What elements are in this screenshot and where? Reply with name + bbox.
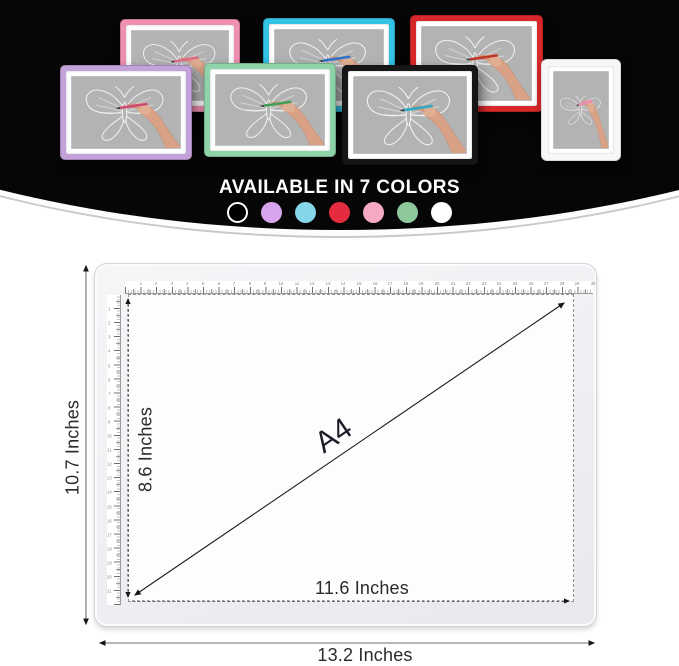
pad-screen <box>553 71 609 149</box>
hand-with-pen <box>113 91 181 149</box>
inner-width-label: 11.6 Inches <box>307 578 417 599</box>
hand-with-pen <box>575 87 609 149</box>
color-swatch-pink <box>363 202 384 223</box>
color-swatch-black <box>227 202 248 223</box>
outer-height-label: 10.7 Inches <box>63 398 84 498</box>
light-pad-white <box>542 60 620 160</box>
color-swatch-red <box>329 202 350 223</box>
light-pad-green <box>204 63 336 157</box>
hero-section: AVAILABLE IN 7 COLORS <box>0 0 679 250</box>
color-swatch-cyan <box>295 202 316 223</box>
pad-screen <box>353 76 467 154</box>
pad-mat <box>66 71 186 154</box>
ruler-top: 1234567891011121314151617181920212223242… <box>125 281 593 294</box>
color-swatches <box>0 202 679 223</box>
color-swatch-lilac <box>261 202 282 223</box>
light-pad-black <box>342 65 478 165</box>
color-swatch-green <box>397 202 418 223</box>
ruler-left: 123456789101112131415161718192021 <box>107 295 121 605</box>
pad-mat <box>548 66 614 154</box>
light-pad-purple <box>60 65 192 160</box>
hand-with-pen <box>257 89 325 146</box>
color-swatch-white <box>431 202 452 223</box>
pad-screen <box>215 74 325 146</box>
outer-width-label: 13.2 Inches <box>310 645 420 666</box>
illuminated-drawing-area <box>128 294 574 602</box>
pad-screen <box>71 76 181 149</box>
inner-height-label: 8.6 Inches <box>136 405 157 495</box>
pad-mat <box>210 69 330 151</box>
hand-with-pen <box>397 92 467 154</box>
headline: AVAILABLE IN 7 COLORS <box>0 177 679 199</box>
pad-mat <box>348 71 472 159</box>
